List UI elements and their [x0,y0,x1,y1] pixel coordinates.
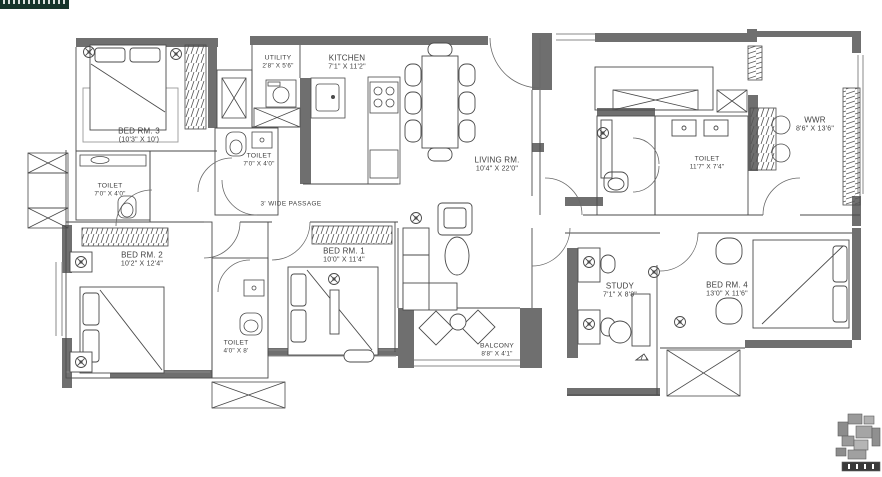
room-label-bed-rm-2: BED RM. 2 10'2" X 12'4" [121,252,163,269]
room-dims: 2'8" X 5'6" [262,62,293,69]
room-label-toilet-bed3: TOILET 7'0" X 4'0" [94,183,125,198]
room-label-toilet-master: TOILET 11'7" X 7'4" [690,156,725,171]
room-label-wwr: WWR 8'6" X 13'6" [796,117,834,134]
room-label-living: LIVING RM. 10'4" X 22'0" [474,157,519,174]
living-furniture [403,203,472,310]
study-furniture [578,248,650,360]
room-dims: 10'0" X 11'4" [323,257,365,265]
balcony-furniture [419,310,495,345]
room-name: BED RM. 3 [118,127,160,136]
watermark-banner [0,0,69,9]
bed1-furniture [288,267,378,362]
room-name: BALCONY [480,343,514,350]
room-label-bed-rm-1: BED RM. 1 10'0" X 11'4" [323,248,365,265]
room-name: TOILET [247,153,272,160]
room-name: TOILET [695,156,720,163]
room-dims: 8'6" X 13'6" [796,126,834,134]
room-dims: 10'4" X 22'0" [474,166,519,174]
room-name: WWR [804,116,825,125]
room-name: BED RM. 2 [121,251,163,260]
room-label-study: STUDY 7'1" X 8'8" [603,283,637,300]
room-dims: 10'2" X 12'4" [121,261,163,269]
room-label-utility: UTILITY 2'8" X 5'6" [262,55,293,70]
room-dims: (10'3" X 10') [118,137,160,145]
bed2-furniture [70,252,164,373]
room-label-balcony: BALCONY 8'8" X 4'1" [480,343,514,358]
room-dims: 8'8" X 4'1" [480,350,514,357]
room-dims: 4'0" X 8' [224,347,249,354]
room-name: LIVING RM. [474,156,519,165]
key-plan-thumbnail [836,414,880,471]
room-label-bed-rm-3: BED RM. 3 (10'3" X 10') [118,128,160,145]
room-name: BED RM. 1 [323,247,365,256]
room-dims: 11'7" X 7'4" [690,163,725,170]
room-dims: 7'0" X 4'0" [243,160,274,167]
passage-label: 3' WIDE PASSAGE [260,200,321,207]
floor-plan-canvas [0,0,882,477]
kitchen-fixtures [311,77,400,184]
floor-plan-page: BED RM. 3 (10'3" X 10') TOILET 7'0" X 4'… [0,0,882,477]
dining-set [405,43,475,161]
room-name: TOILET [98,183,123,190]
utility-fixtures [266,80,296,107]
room-dims: 13'0" X 11'6" [706,291,748,299]
room-dims: 7'1" X 11'2" [328,64,366,72]
room-label-toilet-shared: TOILET 4'0" X 8' [224,340,249,355]
room-name: TOILET [224,340,249,347]
room-name: BED RM. 4 [706,281,748,290]
room-dims: 7'1" X 8'8" [603,292,637,300]
room-label-kitchen: KITCHEN 7'1" X 11'2" [328,55,366,72]
room-name: STUDY [606,282,634,291]
watermark-text-fragment [3,0,66,4]
room-name: 3' WIDE PASSAGE [260,200,321,207]
room-name: KITCHEN [329,54,366,63]
room-label-toilet-common: TOILET 7'0" X 4'0" [243,153,274,168]
room-label-bed-rm-4: BED RM. 4 13'0" X 11'6" [706,282,748,299]
toilet-shared-fixtures [240,280,264,335]
room-dims: 7'0" X 4'0" [94,190,125,197]
room-name: UTILITY [265,55,292,62]
